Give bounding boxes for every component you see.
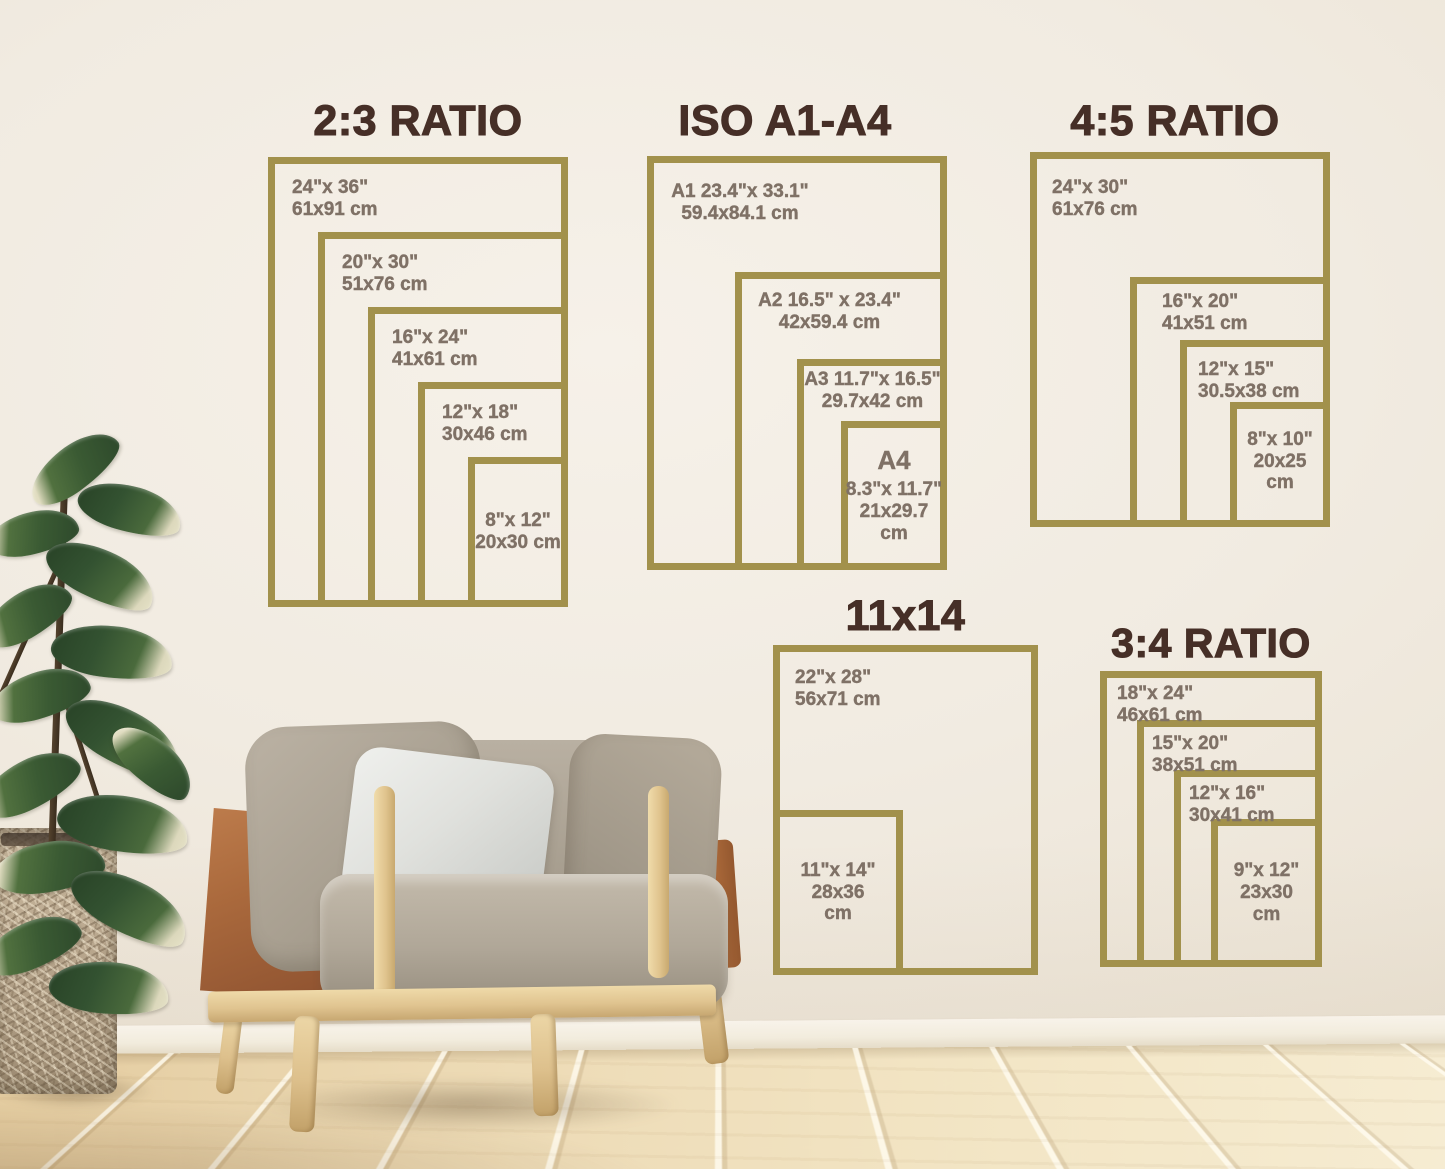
- size-label-22x28: 22"x 28"56x71 cm: [795, 667, 881, 711]
- size-label-a1: A1 23.4"x 33.1"59.4x84.1 cm: [640, 181, 840, 225]
- size-label-20x30: 20"x 30"51x76 cm: [342, 252, 428, 296]
- group-title-2-3-ratio: 2:3 RATIO: [268, 100, 568, 143]
- size-label-24x30: 24"x 30"61x76 cm: [1052, 177, 1138, 221]
- group-title-3-4-ratio: 3:4 RATIO: [1100, 623, 1322, 664]
- size-label-9x12: 9"x 12"23x30cm: [1211, 819, 1322, 967]
- size-label-15x20: 15"x 20"38x51 cm: [1152, 733, 1238, 777]
- size-label-16x20: 16"x 20"41x51 cm: [1162, 291, 1248, 335]
- size-label-a2: A2 16.5" x 23.4"42x59.4 cm: [742, 290, 917, 334]
- size-label-11x14: 11"x 14"28x36cm: [773, 810, 903, 975]
- size-label-12x18: 12"x 18"30x46 cm: [442, 402, 528, 446]
- size-label-8x12: 8"x 12"20x30 cm: [468, 457, 568, 607]
- size-label-12x15: 12"x 15"30.5x38 cm: [1198, 359, 1299, 403]
- size-label-a3: A3 11.7"x 16.5"29.7x42 cm: [800, 369, 945, 413]
- group-title-iso-a1-a4: ISO A1-A4: [635, 100, 935, 143]
- size-label-8x10: 8"x 10"20x25cm: [1230, 402, 1330, 527]
- group-title-4-5-ratio: 4:5 RATIO: [1025, 100, 1325, 143]
- size-label-a4: A48.3"x 11.7"21x29.7cm: [841, 421, 947, 570]
- size-label-16x24: 16"x 24"41x61 cm: [392, 327, 478, 371]
- print-size-guide-decal: 2:3 RATIO 24"x 36"61x91 cm 20"x 30"51x76…: [0, 0, 1445, 1169]
- group-title-11x14: 11x14: [773, 595, 1038, 638]
- size-label-24x36: 24"x 36"61x91 cm: [292, 177, 378, 221]
- size-label-18x24: 18"x 24"46x61 cm: [1117, 683, 1203, 727]
- room-scene: 2:3 RATIO 24"x 36"61x91 cm 20"x 30"51x76…: [0, 0, 1445, 1169]
